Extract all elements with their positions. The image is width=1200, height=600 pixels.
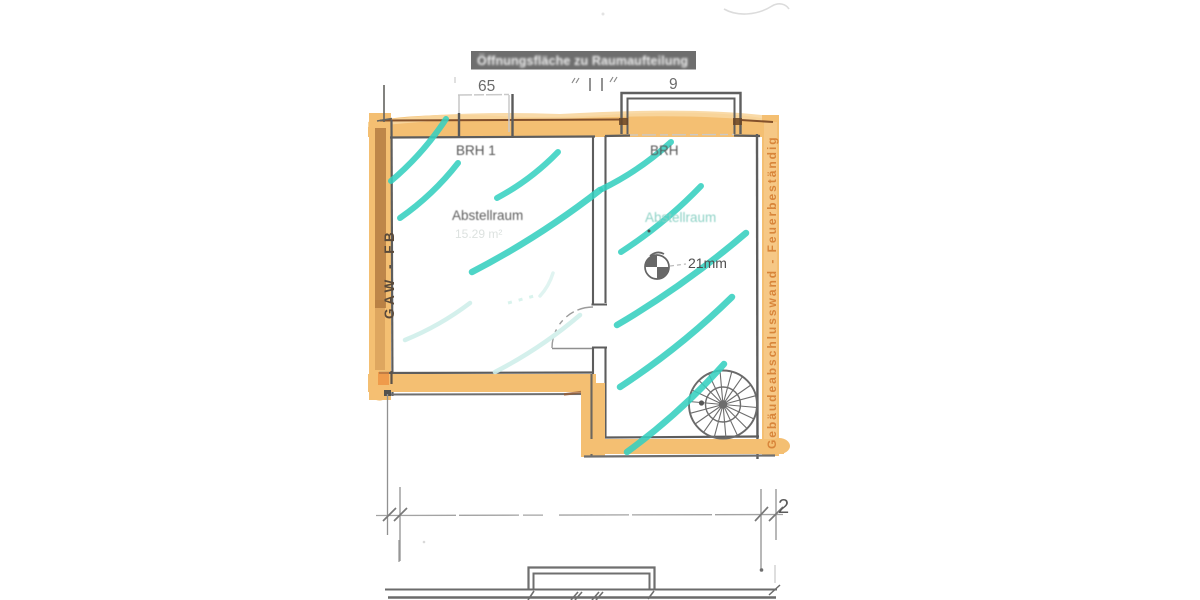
svg-text:21mm: 21mm: [688, 255, 727, 271]
svg-text:Abstellraum: Abstellraum: [645, 210, 716, 225]
svg-text:GAW - FB: GAW - FB: [382, 229, 397, 319]
svg-text:Gebäudeabschlusswand - Feuerbe: Gebäudeabschlusswand - Feuerbeständig: [765, 137, 779, 449]
svg-text:2: 2: [778, 496, 789, 518]
svg-text:BRH 1: BRH 1: [456, 143, 496, 158]
svg-text:Abstellraum: Abstellraum: [452, 208, 523, 223]
svg-text:Öffnungsfläche zu Raumaufteilu: Öffnungsfläche zu Raumaufteilung: [477, 53, 688, 68]
svg-text:65: 65: [478, 78, 495, 95]
svg-text:9: 9: [669, 76, 678, 93]
svg-text:15.29 m²: 15.29 m²: [455, 227, 502, 241]
svg-text:BRH: BRH: [650, 143, 679, 158]
